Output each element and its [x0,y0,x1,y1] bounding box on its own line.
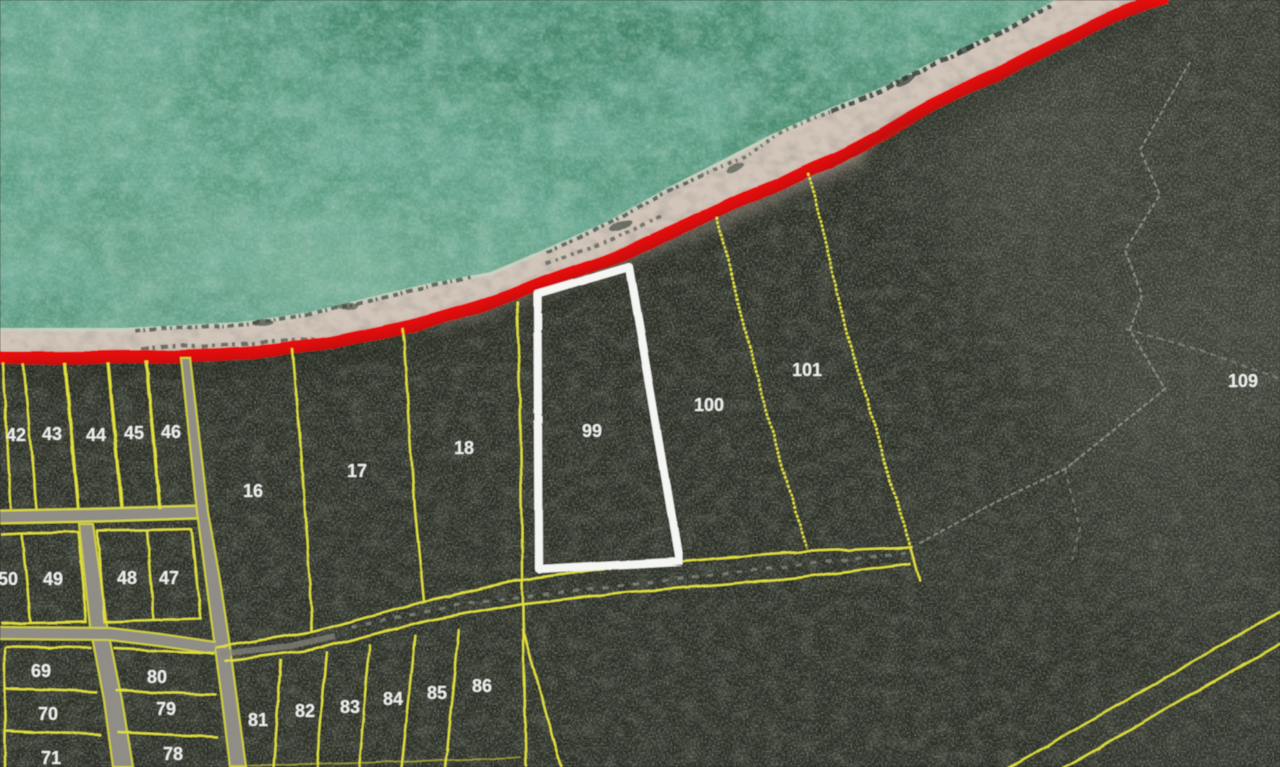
svg-text:86: 86 [472,676,492,696]
svg-text:85: 85 [427,683,447,703]
svg-text:43: 43 [42,424,62,444]
svg-text:70: 70 [38,704,58,724]
svg-text:45: 45 [124,423,144,443]
svg-text:82: 82 [295,701,315,721]
svg-text:99: 99 [582,421,602,441]
svg-text:50: 50 [0,569,18,589]
svg-text:48: 48 [117,568,137,588]
svg-text:79: 79 [156,699,176,719]
svg-text:44: 44 [86,425,106,445]
svg-text:81: 81 [248,710,268,730]
svg-text:109: 109 [1228,371,1258,391]
svg-text:101: 101 [792,360,822,380]
svg-text:18: 18 [454,438,474,458]
svg-text:42: 42 [6,425,26,445]
svg-text:83: 83 [340,697,360,717]
svg-text:47: 47 [159,568,179,588]
svg-text:16: 16 [243,481,263,501]
svg-text:69: 69 [31,661,51,681]
svg-text:78: 78 [163,744,183,764]
svg-text:49: 49 [43,569,63,589]
svg-text:84: 84 [383,689,403,709]
svg-text:46: 46 [161,422,181,442]
svg-text:80: 80 [147,667,167,687]
svg-text:17: 17 [347,461,367,481]
svg-text:100: 100 [694,395,724,415]
svg-text:71: 71 [41,748,61,767]
